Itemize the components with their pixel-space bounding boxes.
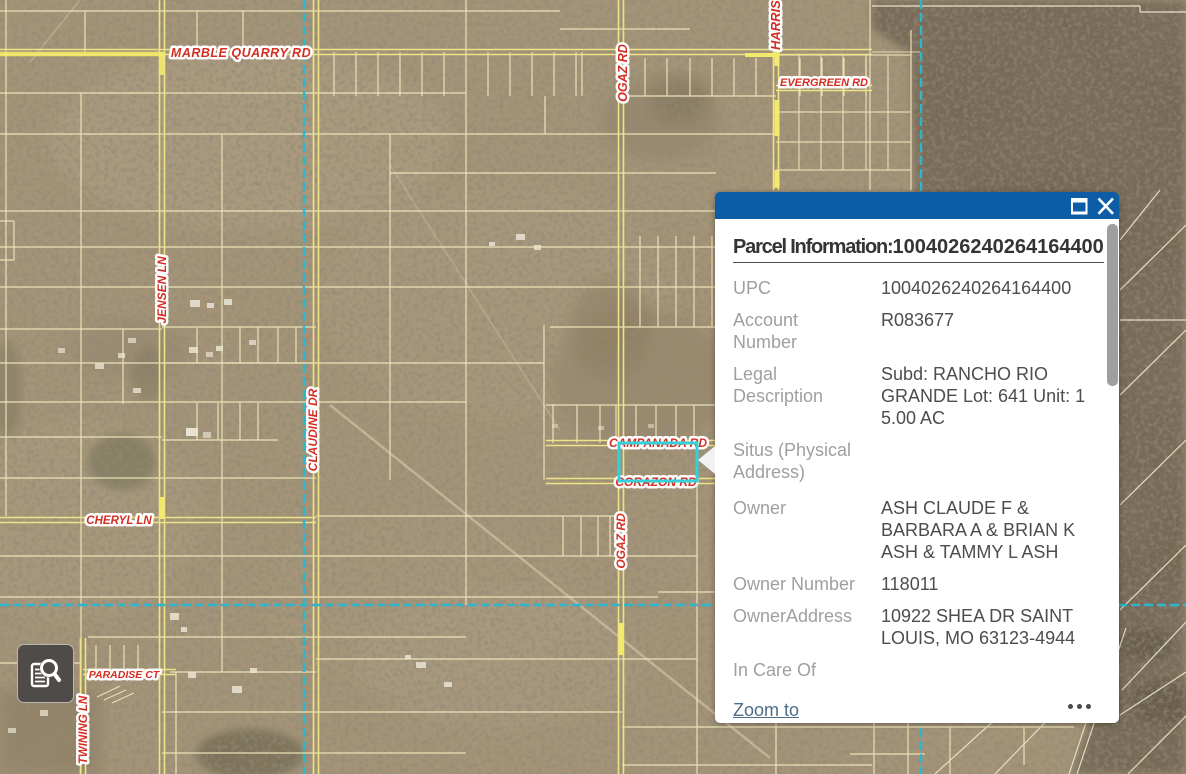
svg-text:MARBLE QUARRY RD: MARBLE QUARRY RD	[171, 46, 311, 60]
svg-text:PARADISE CT: PARADISE CT	[89, 669, 161, 681]
svg-text:OGAZ RD: OGAZ RD	[616, 44, 630, 102]
svg-text:HARRISON RD: HARRISON RD	[768, 0, 783, 50]
svg-text:TWINING LN: TWINING LN	[78, 695, 90, 764]
svg-text:CHERYL LN: CHERYL LN	[86, 515, 152, 527]
svg-text:JENSEN LN: JENSEN LN	[155, 256, 169, 324]
svg-text:OGAZ RD: OGAZ RD	[614, 513, 628, 569]
svg-text:EVERGREEN RD: EVERGREEN RD	[780, 77, 868, 89]
svg-text:CLAUDINE DR: CLAUDINE DR	[306, 388, 320, 471]
